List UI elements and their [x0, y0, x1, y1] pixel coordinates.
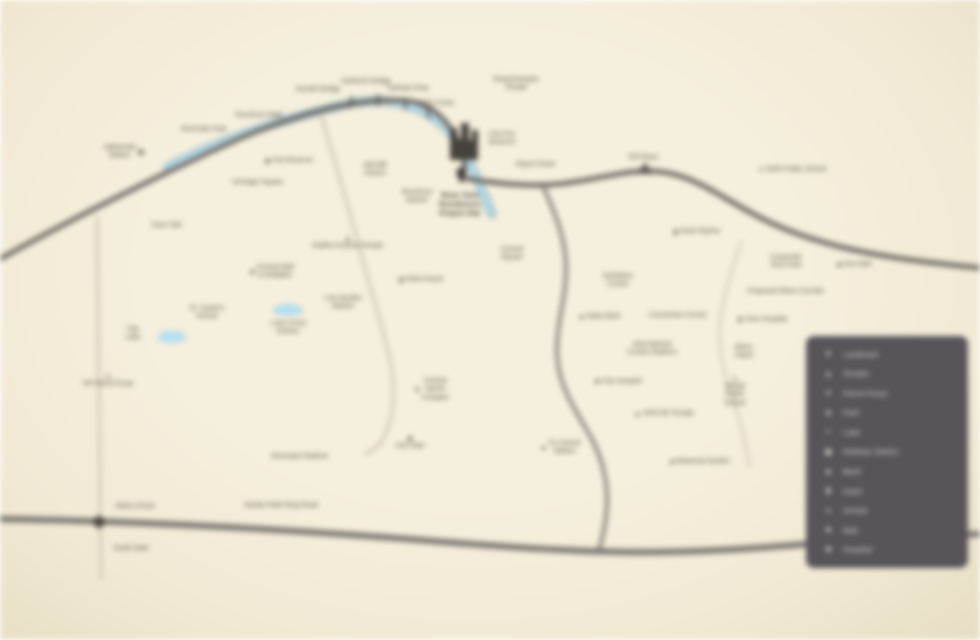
- map-label-text: Riverfront Walk: [235, 112, 283, 120]
- map-label-text: MetroDepot: [735, 344, 754, 361]
- map-label-text: River ViewResidencesProject Site: [439, 192, 481, 219]
- map-label-text: Sardar Patel Ring Road: [244, 502, 318, 510]
- landmark-icon: ◆: [265, 158, 270, 165]
- map-label-state-bank: ◈State Bank: [579, 313, 621, 321]
- map-label-text: St. Xavier'sSchool: [189, 305, 224, 322]
- map-label-tech-park: CorporateTech Park: [770, 254, 801, 271]
- legend-item-label: School: [843, 506, 868, 515]
- map-label-text: Heritage Square: [233, 179, 284, 187]
- park-icon: ♣: [820, 409, 837, 417]
- hospital-icon: ✚: [737, 317, 743, 324]
- legend-item-railway-station: ▣Railway Station: [820, 445, 956, 459]
- map-label-text: RTO Circle: [420, 100, 454, 108]
- star-icon: ★: [820, 350, 837, 358]
- map-label-hotel-skyline: ▮Hotel Skyline: [674, 228, 721, 236]
- map-label-text: ExhibitionCentre: [603, 273, 633, 290]
- map-label-riverfront-market: RiverfrontMarket: [402, 189, 432, 206]
- legend-item-label: Hospital: [843, 545, 873, 554]
- railway-icon: ▣: [138, 149, 145, 156]
- hotel-icon: ▮: [674, 229, 678, 236]
- map-label-subhash-bridge: Subhash Bridge: [341, 78, 391, 86]
- map-label-swaminarayan-temple: SwaminarayanTemple: [493, 76, 539, 93]
- map-label-global-school: ✦GlobalPublicSchool: [724, 376, 745, 408]
- map-label-airport-road: Airport Road: [515, 161, 554, 169]
- map-label-central-mall: ■Central Mall& Multiplex: [250, 264, 294, 281]
- map-label-text: State Bank: [587, 313, 621, 321]
- map-label-heritage-square: Heritage Square: [233, 179, 284, 187]
- map-label-text: Proposed Metro Corridor: [747, 288, 824, 296]
- map-label-radha-krishna-temple: ▲Radha Krishna Temple: [313, 235, 384, 250]
- petrol-icon: ●: [106, 373, 110, 380]
- map-label-text: Law GardenMarket: [324, 295, 362, 312]
- map-label-text: Nehru Circle: [116, 503, 155, 511]
- legend-item-label: Bank: [843, 467, 861, 476]
- map-label-text: CorporateTech Park: [770, 254, 801, 271]
- petrol-icon: ●: [820, 389, 837, 397]
- temple-icon: ▲: [345, 235, 352, 242]
- map-label-text: CentralSquare: [501, 246, 524, 263]
- legend-item-temple: ▲Temple: [820, 367, 956, 381]
- map-label-toll-plaza: Toll Plaza: [628, 154, 658, 162]
- legend-item-label: Railway Station: [843, 447, 899, 456]
- legend-item-bank: ◈Bank: [820, 465, 956, 479]
- legend-item-label: Petrol Pump: [843, 389, 888, 398]
- map-label-metro-corridor: Proposed Metro Corridor: [747, 288, 824, 296]
- legend-box: ★Landmark▲Temple●Petrol Pump♣Park≈Lake▣R…: [806, 336, 968, 568]
- map-label-text: Care Hospital: [745, 316, 787, 324]
- map-label-text: SabarmatiStation: [104, 144, 136, 161]
- map-label-city-hospital: ✚City Hospital: [594, 378, 641, 386]
- map-label-text: Hotel Grand: [405, 276, 443, 284]
- school-icon: ✦: [758, 167, 764, 174]
- map-label-lotus-pond-garden: Lotus PondGarden: [270, 320, 305, 337]
- map-label-town-hall: Town Hall: [151, 222, 181, 230]
- park-icon: ♣: [670, 459, 675, 466]
- map-label-rto-circle: RTO Circle: [420, 100, 454, 108]
- map-label-city-museum: ◆City Museum: [265, 157, 313, 165]
- map-label-city-lake: CityLake: [125, 326, 140, 343]
- map-label-text: Old MillDistrict: [363, 162, 386, 179]
- map-label-text: One Mall: [843, 261, 871, 269]
- legend-item-park: ♣Park: [820, 406, 956, 420]
- map-label-iskcon-temple: ▲ISKCON Temple: [634, 410, 694, 418]
- map-label-petrol-pump: ●HP Petrol Pump: [83, 373, 133, 388]
- map-label-law-garden-market: Law GardenMarket: [324, 295, 362, 312]
- map-label-gandhi-bridge: Gandhi Bridge: [296, 86, 341, 94]
- map-label-text: InternationalCricket Stadium: [627, 341, 676, 358]
- map-label-text: Delhi Public School: [766, 166, 826, 174]
- map-label-city-fort: City FortMuseum: [489, 131, 516, 148]
- map-label-text: Toll Plaza: [628, 154, 658, 162]
- map-label-one-mall: ■One Mall: [837, 261, 871, 269]
- landmark-icon: ◆: [407, 435, 412, 442]
- map-label-text: City Gate: [395, 442, 424, 450]
- legend-item-petrol-pump: ●Petrol Pump: [820, 386, 956, 400]
- map-label-text: Riverside Park: [181, 126, 227, 134]
- map-label-text: Convention Centre: [649, 312, 707, 320]
- map-label-sabarmati-station: ▣SabarmatiStation: [104, 144, 145, 161]
- legend-item-lake: ≈Lake: [820, 425, 956, 439]
- map-label-riverside-park: Riverside Park: [181, 126, 227, 134]
- mall-icon: ■: [250, 269, 254, 276]
- map-label-public-school: ✦Delhi Public School: [758, 166, 826, 174]
- map-label-project-site: River ViewResidencesProject Site: [439, 192, 481, 219]
- map-label-text: City Hospital: [602, 378, 641, 386]
- map-label-nehru-circle: Nehru Circle: [116, 503, 155, 511]
- mall-icon: ■: [837, 262, 841, 269]
- map-label-text: Central Mall& Multiplex: [256, 264, 293, 281]
- map-label-care-hospital: ✚Care Hospital: [737, 316, 787, 324]
- map-label-text: Botanical Garden: [676, 458, 730, 466]
- map-label-hotel-grand: ▮Hotel Grand: [399, 276, 443, 284]
- map-label-text: GlobalPublicSchool: [724, 383, 745, 408]
- map-label-sports-complex: ♣CentralSportsComplex: [415, 378, 449, 403]
- map-label-text: To CentralStation: [549, 440, 581, 457]
- map-label-exhibition-centre: ExhibitionCentre: [603, 273, 633, 290]
- blur-layer: Gandhi BridgeSubhash BridgeDafnala GhatR…: [0, 0, 980, 640]
- map-label-text: Gandhi Bridge: [296, 86, 341, 94]
- map-label-text: CityLake: [125, 326, 140, 343]
- map-label-text: Airport Road: [515, 161, 554, 169]
- hotel-icon: ▮: [399, 277, 403, 284]
- map-label-municipal-stadium: Municipal Stadium: [271, 453, 328, 461]
- map-label-south-gate: South Gate: [113, 545, 148, 553]
- map-label-text: Hotel Skyline: [680, 228, 721, 236]
- railway-icon: ▣: [820, 448, 837, 456]
- bank-icon: ◈: [579, 314, 584, 321]
- map-label-botanical-garden: ♣Botanical Garden: [670, 458, 731, 466]
- map-label-text: Dafnala Ghat: [387, 85, 428, 93]
- map-label-text: HP Petrol Pump: [83, 380, 133, 388]
- legend-item-label: Lake: [843, 428, 860, 437]
- legend-item-label: Landmark: [843, 350, 879, 359]
- map-label-text: CentralSportsComplex: [421, 378, 449, 403]
- map-label-text: RiverfrontMarket: [402, 189, 432, 206]
- map-label-central-square: CentralSquare: [501, 246, 524, 263]
- hospital-icon: ✚: [594, 379, 600, 386]
- legend-item-school: ✦School: [820, 504, 956, 518]
- map-label-text: Radha Krishna Temple: [313, 242, 384, 250]
- map-label-ring-road: Sardar Patel Ring Road: [244, 502, 318, 510]
- legend-item-label: Temple: [843, 369, 869, 378]
- legend-item-hospital: ✚Hospital: [820, 543, 956, 557]
- park-icon: ♣: [415, 387, 420, 394]
- map-label-dafnala-ghat: Dafnala Ghat: [387, 85, 428, 93]
- map-stage: Gandhi BridgeSubhash BridgeDafnala GhatR…: [0, 0, 980, 640]
- map-label-text: Lotus PondGarden: [270, 320, 305, 337]
- legend-item-mall: ■Mall: [820, 523, 956, 537]
- map-label-text: South Gate: [113, 545, 148, 553]
- legend-item-landmark: ★Landmark: [820, 347, 956, 361]
- map-label-old-mill-district: Old MillDistrict: [363, 162, 386, 179]
- hotel-icon: ▮: [820, 487, 837, 495]
- map-label-text: City Museum: [272, 157, 313, 165]
- temple-icon: ▲: [820, 370, 837, 378]
- map-label-text: SwaminarayanTemple: [493, 76, 539, 93]
- map-label-city-gate: ◆City Gate: [395, 435, 424, 450]
- hospital-icon: ✚: [820, 546, 837, 554]
- map-label-metro-depot: MetroDepot: [735, 344, 754, 361]
- map-screenshot: Gandhi BridgeSubhash BridgeDafnala GhatR…: [0, 0, 980, 640]
- legend-item-label: Park: [843, 408, 860, 417]
- legend-item-label: Hotel: [843, 487, 862, 496]
- temple-icon: ▲: [634, 411, 641, 418]
- map-label-riverfront-walk: Riverfront Walk: [235, 112, 283, 120]
- mall-icon: ■: [820, 526, 837, 534]
- map-label-text: City FortMuseum: [489, 131, 516, 148]
- legend-item-label: Mall: [843, 526, 858, 535]
- arrow-left-icon: ◄: [540, 445, 547, 452]
- map-label-convention-centre: Convention Centre: [649, 312, 707, 320]
- map-label-cricket-stadium: InternationalCricket Stadium: [627, 341, 676, 358]
- school-icon: ✦: [820, 507, 837, 515]
- map-label-text: Subhash Bridge: [341, 78, 391, 86]
- school-icon: ✦: [732, 376, 738, 383]
- map-label-st-xaviers-school: St. Xavier'sSchool: [189, 305, 224, 322]
- map-label-text: Town Hall: [151, 222, 181, 230]
- map-label-text: Municipal Stadium: [271, 453, 328, 461]
- lake-icon: ≈: [820, 428, 837, 436]
- map-label-text: ISKCON Temple: [643, 410, 694, 418]
- bank-icon: ◈: [820, 468, 837, 476]
- map-label-to-central-station: ◄To CentralStation: [540, 440, 581, 457]
- legend-item-hotel: ▮Hotel: [820, 484, 956, 498]
